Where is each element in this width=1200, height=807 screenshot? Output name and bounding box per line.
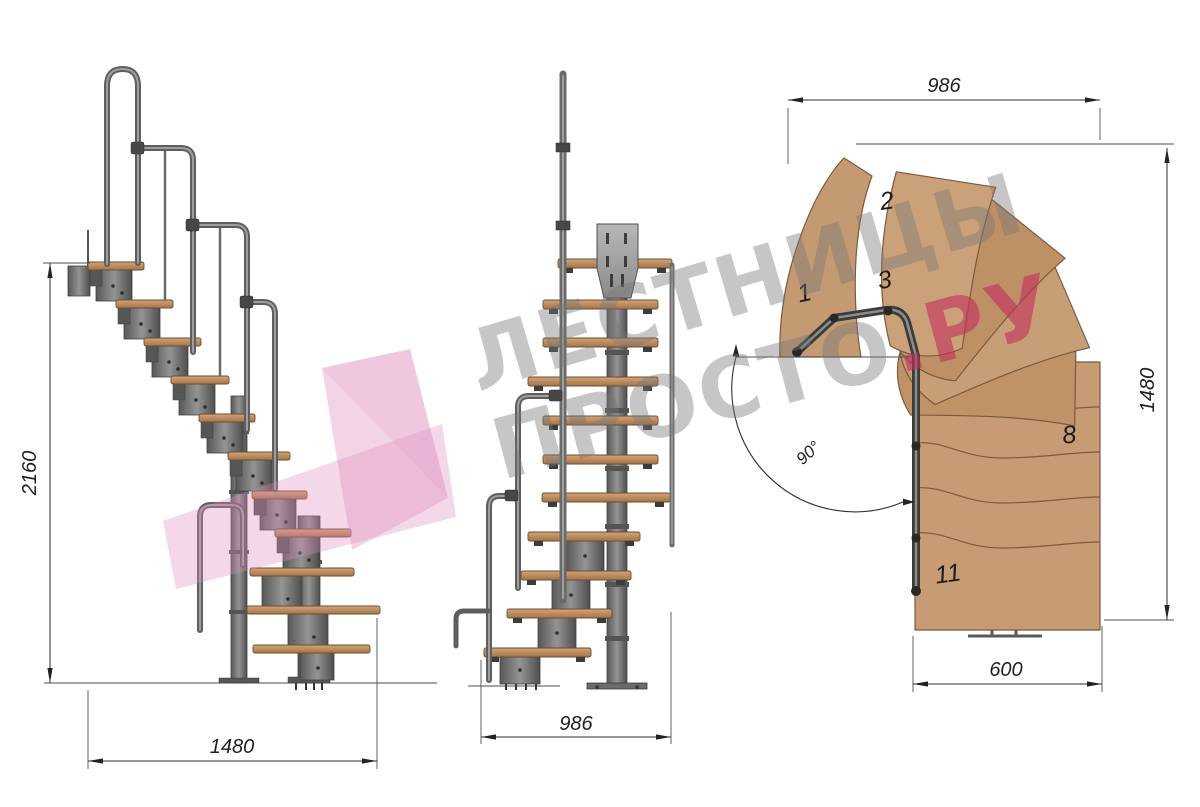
staircase-drawing-page: 2160 1480 <box>0 0 1200 807</box>
dimension-label-side-length: 1480 <box>210 736 255 758</box>
dimension-side-height: 2160 <box>19 263 90 683</box>
tread-number-11: 11 <box>933 558 963 589</box>
technical-drawing-canvas: 2160 1480 <box>0 0 1200 807</box>
dimension-plan-width: 986 <box>788 75 1100 164</box>
dimension-label-turn-angle: 90° <box>792 437 824 468</box>
plan-base-flange <box>968 630 1042 636</box>
dimension-label-plan-width: 986 <box>927 75 961 97</box>
dimension-plan-depth: 1480 <box>1104 148 1174 620</box>
dimension-label-plan-depth: 1480 <box>1137 368 1159 413</box>
dimension-label-front-width: 986 <box>559 713 593 735</box>
dimension-label-side-height: 2160 <box>19 451 41 497</box>
dimension-label-plan-exit-width: 600 <box>989 659 1022 681</box>
